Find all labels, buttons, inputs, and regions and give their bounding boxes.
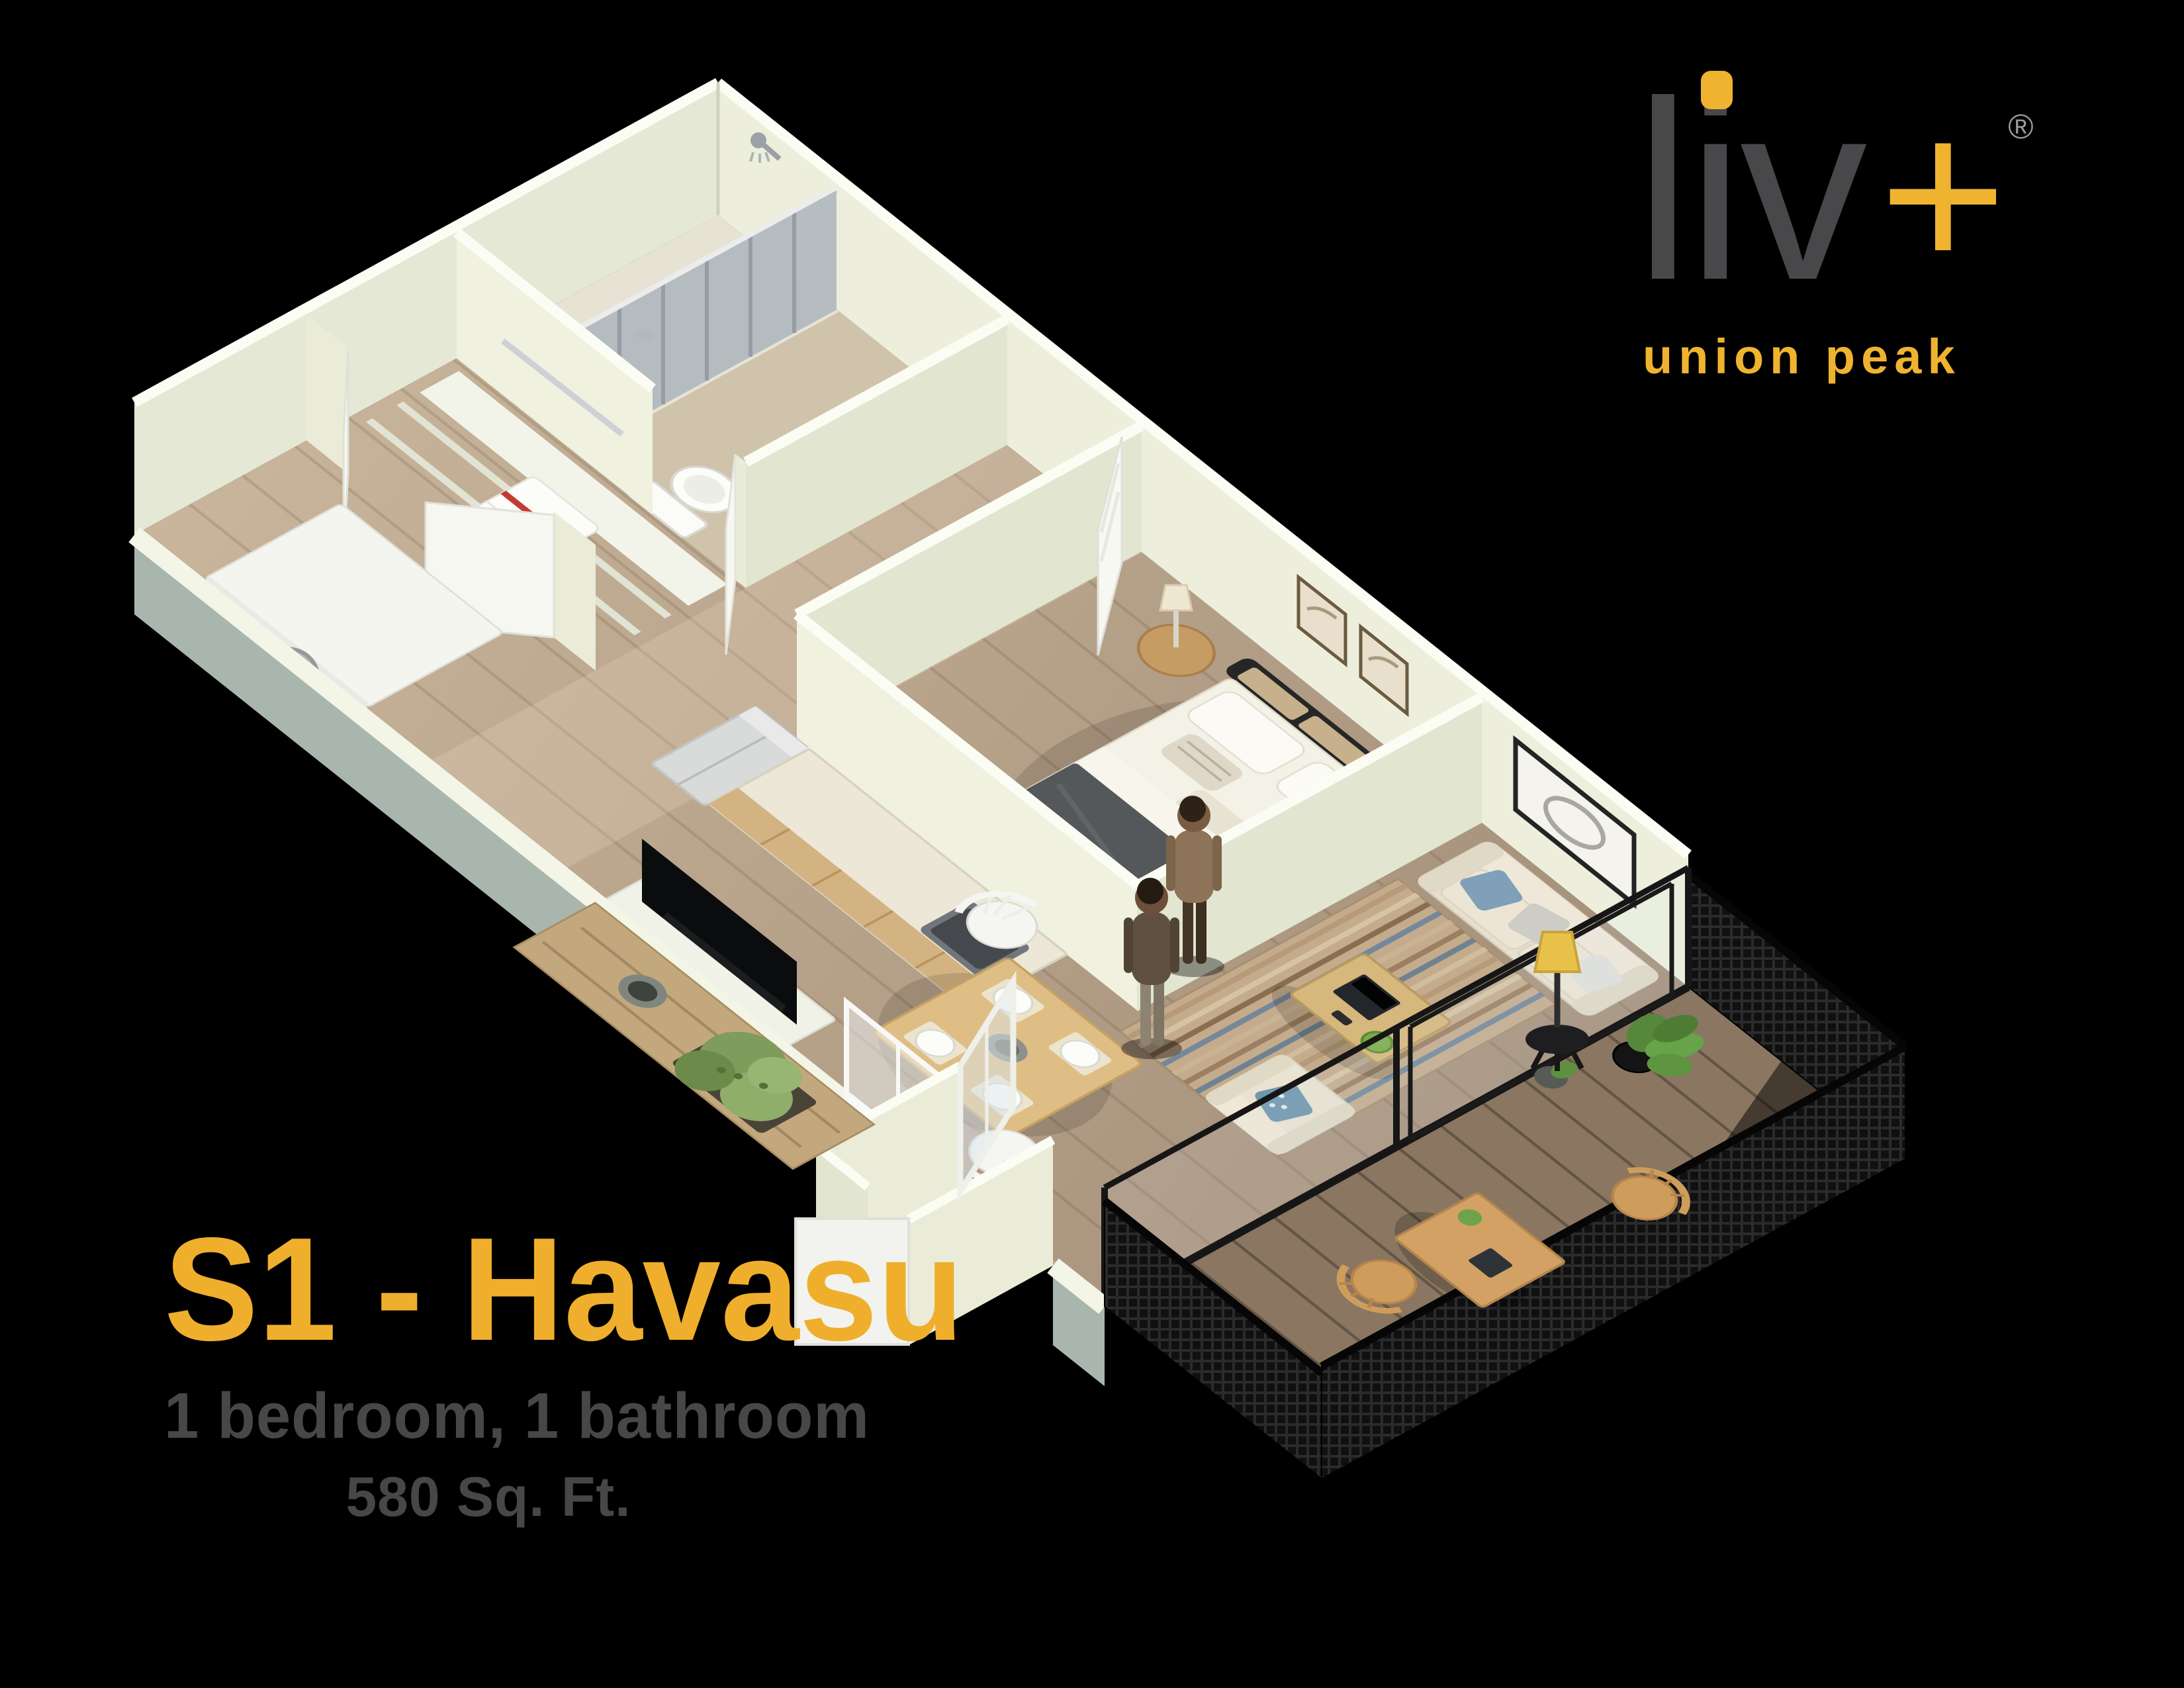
logo-i-dot bbox=[1701, 71, 1733, 109]
logo-liv-text: liv bbox=[1635, 48, 1864, 333]
plan-title: S1 - Havasu bbox=[164, 1215, 964, 1364]
plan-subtitle: 1 bedroom, 1 bathroom bbox=[164, 1379, 972, 1453]
plan-info: S1 - Havasu 1 bedroom, 1 bathroom 580 Sq… bbox=[164, 1215, 997, 1529]
logo-liv-row: liv+® bbox=[1635, 63, 2025, 318]
registered-mark-icon: ® bbox=[2008, 108, 2029, 146]
logo-plus: + bbox=[1880, 71, 2003, 316]
logo-tagline: union peak bbox=[1643, 328, 2025, 385]
plan-area: 580 Sq. Ft. bbox=[164, 1465, 813, 1529]
brand-logo: liv+® union peak bbox=[1635, 63, 2025, 385]
